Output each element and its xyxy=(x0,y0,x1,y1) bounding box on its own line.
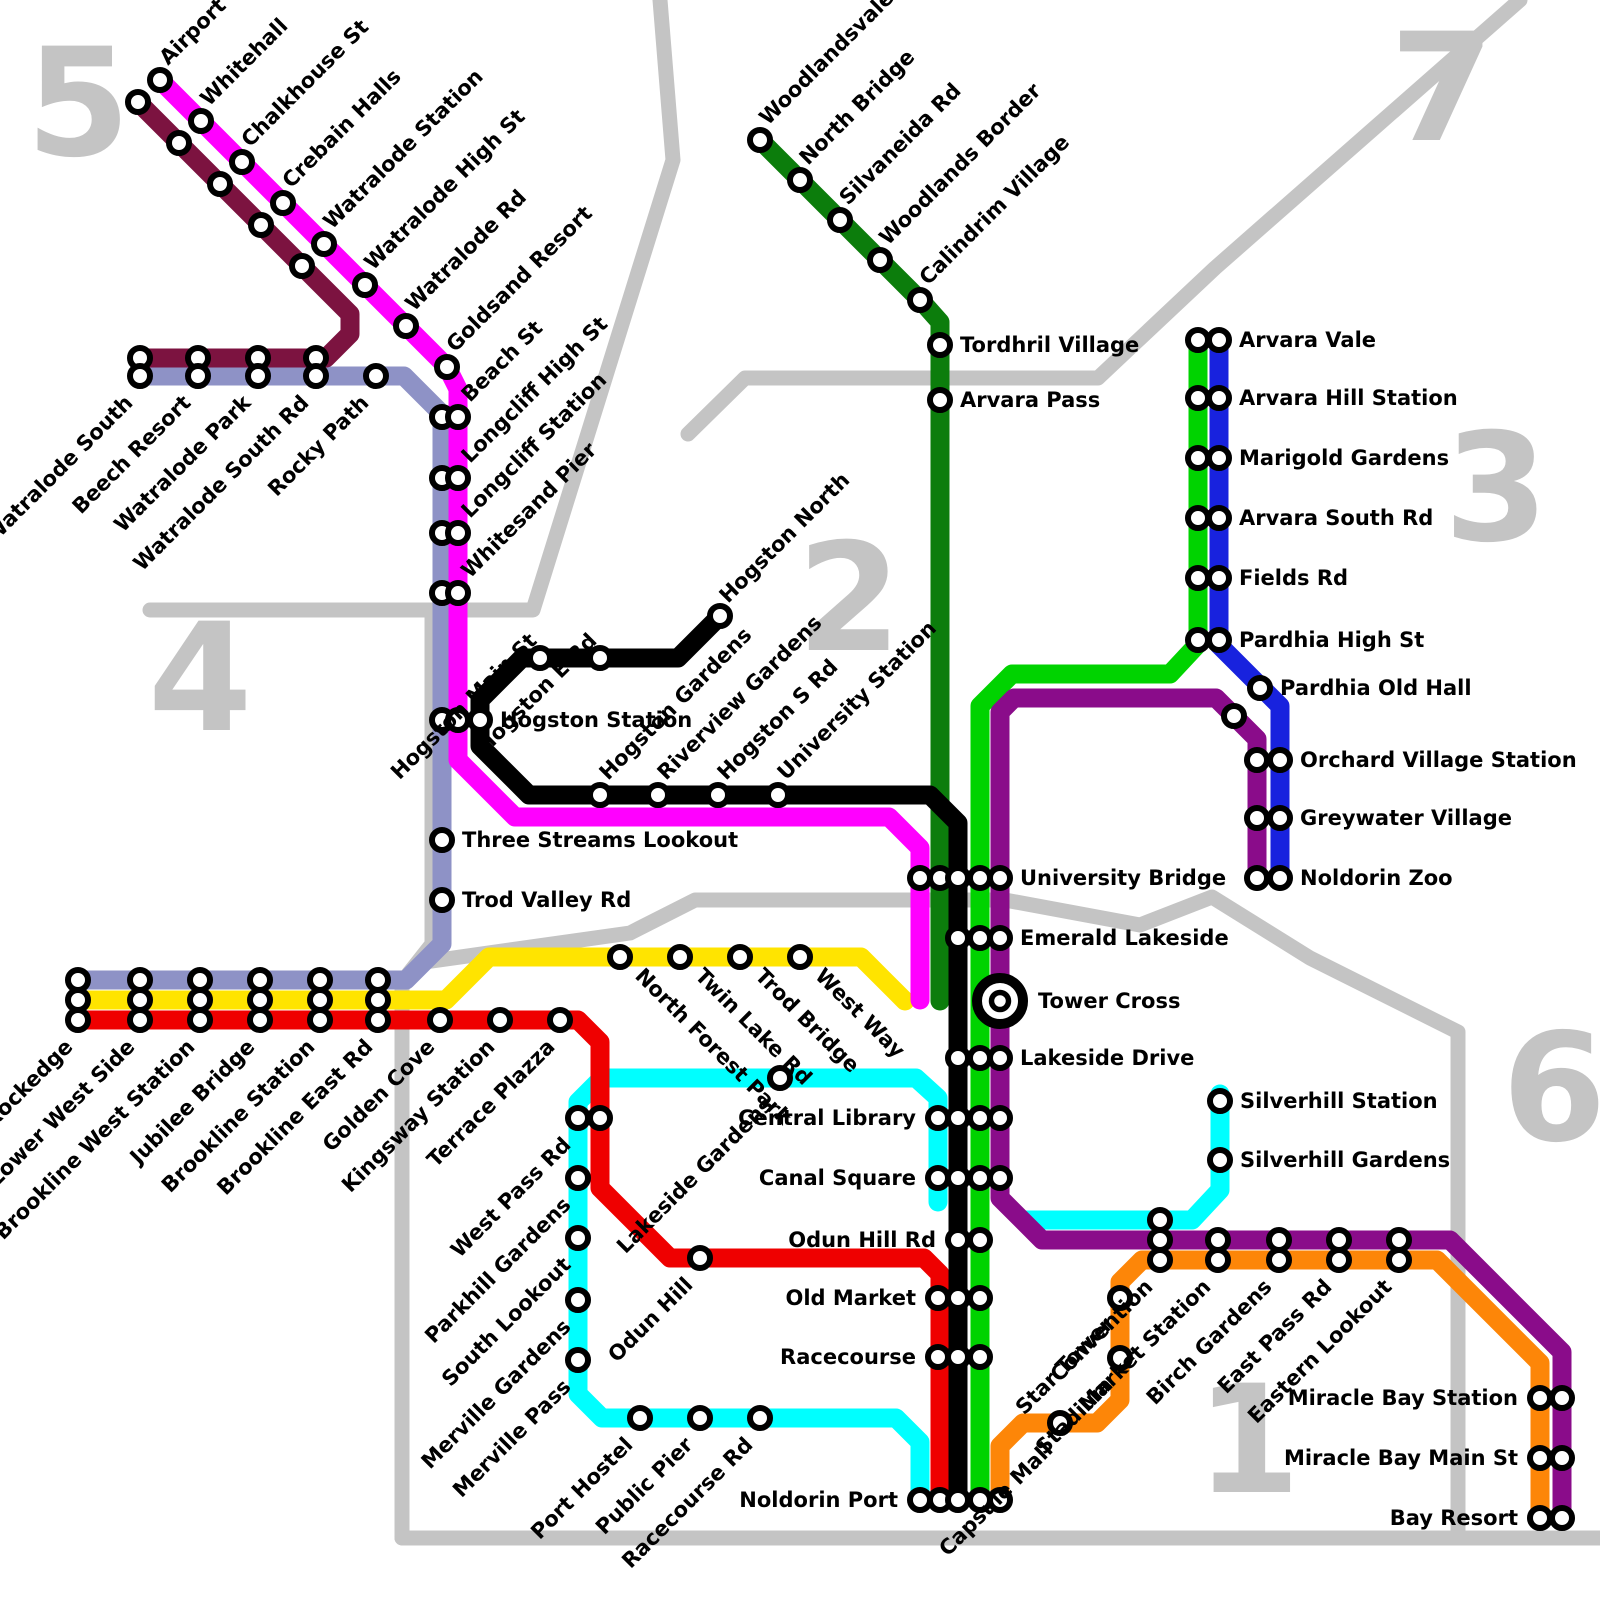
station-label: Tower Cross xyxy=(1038,989,1180,1013)
station-emerald-lakeside xyxy=(948,928,1010,948)
station-dot xyxy=(248,366,268,386)
station-dot xyxy=(169,133,189,153)
station-label: Silverhill Gardens xyxy=(1240,1148,1450,1172)
station-beach-st xyxy=(432,407,468,427)
station-dot xyxy=(1210,1150,1230,1170)
station-dot xyxy=(750,130,770,150)
station-label: Noldorin Zoo xyxy=(1300,866,1453,890)
station-pardhia-high-st xyxy=(1188,630,1229,650)
station-dot xyxy=(1270,868,1290,888)
station-dot xyxy=(948,1048,968,1068)
station-dot xyxy=(191,111,211,131)
station-dot xyxy=(708,785,728,805)
station-longcliff-high-st xyxy=(432,468,468,488)
station-label: Port Hostel xyxy=(526,1433,637,1544)
station-dot xyxy=(1250,678,1270,698)
station-public-pier xyxy=(690,1408,710,1428)
station-dot xyxy=(251,215,271,235)
zone-number-5: 5 xyxy=(26,17,130,191)
station-label: Emerald Lakeside xyxy=(1020,926,1229,950)
station-dot xyxy=(790,170,810,190)
station-dot xyxy=(306,366,326,386)
station-tordhril-village xyxy=(930,335,950,355)
station-lower-west-side xyxy=(130,970,150,1030)
station-golden-cove xyxy=(430,1010,450,1030)
station-dot xyxy=(1247,808,1267,828)
station-dot xyxy=(292,256,312,276)
station-longcliff-station xyxy=(432,523,468,543)
station-label: Lakeside Drive xyxy=(1020,1046,1194,1070)
station-three-streams-lookout xyxy=(432,830,452,850)
station-jubilee-bridge xyxy=(250,970,270,1030)
station-dot xyxy=(1188,508,1208,528)
station-dot xyxy=(1188,448,1208,468)
station-convention xyxy=(1150,1210,1170,1270)
metro-map: 5723461 AirportWhitehallChalkhouse StCre… xyxy=(0,0,1600,1600)
station-dot xyxy=(568,1108,588,1128)
station-port-hostel xyxy=(630,1408,650,1428)
station-tower-cross xyxy=(977,978,1023,1024)
station-dot xyxy=(948,928,968,948)
station-label: Canal Square xyxy=(759,1166,916,1190)
station-old-market xyxy=(928,1288,990,1308)
station-dot xyxy=(1269,1250,1289,1270)
station-fields-rd xyxy=(1188,568,1229,588)
station-miracle-bay-main-st xyxy=(1530,1448,1572,1468)
station-south-lookout xyxy=(568,1228,588,1248)
station-dot xyxy=(990,928,1010,948)
station-trod-bridge xyxy=(730,947,750,967)
station-label: Pardhia High St xyxy=(1239,628,1424,652)
station-label: Trod Valley Rd xyxy=(462,888,631,912)
station-dot xyxy=(930,335,950,355)
station-dot xyxy=(630,1408,650,1428)
station-dot xyxy=(970,1288,990,1308)
station-dot xyxy=(610,947,630,967)
station-label: Old Market xyxy=(785,1286,916,1310)
station-dot xyxy=(568,1350,588,1370)
station-label: Arvara South Rd xyxy=(1239,506,1433,530)
station-orchard-village-station xyxy=(1247,750,1290,770)
station-brookline-west-station xyxy=(190,970,210,1030)
station-label: Racecourse xyxy=(780,1345,916,1369)
station-west-pass-rd xyxy=(568,1108,610,1128)
station-dot xyxy=(990,1168,1010,1188)
station-woodlands-border xyxy=(870,250,890,270)
station-calindrim-village xyxy=(910,290,930,310)
station-merville-pass xyxy=(568,1350,588,1370)
station-dot xyxy=(1530,1508,1550,1528)
station-dot xyxy=(1188,568,1208,588)
station-dot xyxy=(568,1290,588,1310)
station-label: Miracle Bay Station xyxy=(1288,1386,1518,1410)
station-north-bridge xyxy=(790,170,810,190)
station-dot xyxy=(550,1010,570,1030)
station-dot xyxy=(568,1168,588,1188)
station-dot xyxy=(1389,1250,1409,1270)
station-dot xyxy=(1209,448,1229,468)
station-dot xyxy=(210,174,230,194)
station-label: Pardhia Old Hall xyxy=(1280,676,1472,700)
station-dot xyxy=(1188,330,1208,350)
station-eastern-lookout xyxy=(1389,1230,1409,1270)
station-dot xyxy=(150,70,170,90)
station-label: Silverhill Station xyxy=(1240,1089,1438,1113)
station-label: Orchard Village Station xyxy=(1300,748,1577,772)
station-dot xyxy=(970,1347,990,1367)
station-north-forest-park xyxy=(610,947,630,967)
station-terrace-plazza xyxy=(550,1010,570,1030)
station-lakeside-drive xyxy=(948,1048,1010,1068)
station-birch-gardens xyxy=(1269,1230,1289,1270)
station-label: Arvara Pass xyxy=(960,388,1100,412)
station-dot xyxy=(368,1010,388,1030)
station-label: University Bridge xyxy=(1020,866,1226,890)
line-cyan-east xyxy=(1024,1094,1220,1220)
station-dot xyxy=(432,830,452,850)
station-riverview-gardens xyxy=(648,785,668,805)
station-twin-lake-rd xyxy=(670,947,690,967)
station-dot xyxy=(1247,750,1267,770)
station-dot xyxy=(590,785,610,805)
station-whitehall xyxy=(169,111,211,153)
station-central-library xyxy=(928,1108,1010,1128)
station-label: Central Library xyxy=(738,1106,916,1130)
station-dot xyxy=(948,1490,968,1510)
station-dot xyxy=(970,1230,990,1250)
station-label: Marigold Gardens xyxy=(1239,446,1449,470)
station-label: Odun Hill Rd xyxy=(788,1228,936,1252)
station-merville-gardens xyxy=(568,1290,588,1310)
station-racecourse xyxy=(928,1347,990,1367)
station-arvara-hill-station xyxy=(1188,388,1229,408)
station-dot xyxy=(432,890,452,910)
station-dot xyxy=(314,234,334,254)
station-dot xyxy=(188,366,208,386)
station-dot xyxy=(1530,1388,1550,1408)
station-arvara-south-rd xyxy=(1188,508,1229,528)
station-dot xyxy=(128,92,148,112)
station-brookline-east-rd xyxy=(368,970,388,1030)
zone-number-4: 4 xyxy=(148,592,252,766)
station-dot xyxy=(1188,630,1208,650)
station-label: Airport xyxy=(155,0,231,70)
station-dot xyxy=(1209,630,1229,650)
station-label: Miracle Bay Main St xyxy=(1284,1446,1518,1470)
station-label: Watralode Station xyxy=(319,64,488,233)
station-label: Trod Bridge xyxy=(750,964,864,1078)
station-label: Woodlands Border xyxy=(875,78,1046,249)
station-dot xyxy=(448,583,468,603)
station-beech-resort xyxy=(188,348,208,386)
station-canal-square xyxy=(928,1168,1010,1188)
station-label: Fields Rd xyxy=(1239,566,1348,590)
station-brookline-station xyxy=(310,970,330,1030)
station-racecourse-rd xyxy=(750,1408,770,1428)
station-watralode-park xyxy=(248,348,268,386)
station-hogston-north xyxy=(710,606,730,626)
station-dot xyxy=(710,606,730,626)
station-dot xyxy=(1530,1448,1550,1468)
zone-number-7: 7 xyxy=(1390,2,1494,176)
station-dot xyxy=(430,1010,450,1030)
station-dot xyxy=(396,316,416,336)
station-dot xyxy=(768,785,788,805)
station-dot xyxy=(1552,1448,1572,1468)
station-university-bridge xyxy=(910,868,1010,888)
station-dot xyxy=(130,1010,150,1030)
station-crebain-halls xyxy=(251,193,293,235)
station-dot xyxy=(448,407,468,427)
station-dot xyxy=(568,1228,588,1248)
station-arvara-vale xyxy=(1188,330,1229,350)
station-west-way xyxy=(790,947,810,967)
station-label: Watralode High St xyxy=(360,104,530,274)
station-dot xyxy=(948,1108,968,1128)
station-dot xyxy=(948,1288,968,1308)
station-dot xyxy=(590,1108,610,1128)
station-label: Tordhril Village xyxy=(960,333,1139,357)
station-dot xyxy=(250,1010,270,1030)
station-label: Greywater Village xyxy=(1300,806,1512,830)
station-dot xyxy=(130,366,150,386)
station-greywater-village xyxy=(1247,808,1290,828)
station-dot xyxy=(1552,1508,1572,1528)
station-dot xyxy=(1270,808,1290,828)
station-dot xyxy=(648,785,668,805)
station-east-pass-rd xyxy=(1329,1230,1349,1270)
station-dot xyxy=(790,947,810,967)
station-dot xyxy=(366,366,386,386)
station-dot xyxy=(750,1408,770,1428)
station-dot xyxy=(355,275,375,295)
station-dot xyxy=(437,357,457,377)
station-hogston-gardens xyxy=(590,785,610,805)
station-dot xyxy=(448,523,468,543)
station-dot xyxy=(1208,1250,1228,1270)
station-dot xyxy=(670,947,690,967)
station-label: Odun Hill xyxy=(603,1273,697,1367)
station-watralode-high-st xyxy=(355,275,375,295)
station-dot xyxy=(1210,1091,1230,1111)
station-dot xyxy=(690,1408,710,1428)
station-watralode-south xyxy=(130,348,150,386)
station-dot xyxy=(1224,706,1244,726)
station-rockedge xyxy=(68,970,88,1030)
station-watralode-station xyxy=(292,234,334,276)
station-market-station xyxy=(1208,1230,1228,1270)
station-noldorin-zoo xyxy=(1247,868,1290,888)
station-label: Calindrim Village xyxy=(915,130,1075,290)
station-dot xyxy=(948,868,968,888)
station-dot xyxy=(990,1048,1010,1068)
station-label: Noldorin Port xyxy=(739,1488,898,1512)
station-dot xyxy=(1209,330,1229,350)
station-dot xyxy=(1247,868,1267,888)
station-dot xyxy=(930,390,950,410)
station-hogston-s-rd xyxy=(708,785,728,805)
station-dot xyxy=(1209,508,1229,528)
station-dot xyxy=(870,250,890,270)
zone-number-3: 3 xyxy=(1444,402,1548,576)
station-dot xyxy=(310,1010,330,1030)
station-bay-resort xyxy=(1530,1508,1572,1528)
station-odun-hill xyxy=(690,1248,710,1268)
station-dot xyxy=(948,1347,968,1367)
station-dot xyxy=(1209,568,1229,588)
station-silverhill-station xyxy=(1210,1091,1230,1111)
station-dot xyxy=(990,1108,1010,1128)
station-dot xyxy=(232,152,252,172)
station-odun-hill-rd xyxy=(948,1230,990,1250)
station-label: Arvara Vale xyxy=(1239,328,1376,352)
station-dot xyxy=(830,210,850,230)
station-university-station xyxy=(768,785,788,805)
station-dot xyxy=(448,468,468,488)
station-dot xyxy=(1150,1250,1170,1270)
station-whitesand-pier xyxy=(432,583,468,603)
station-silvaneida-rd xyxy=(830,210,850,230)
station-label: Three Streams Lookout xyxy=(462,828,738,852)
station-trod-valley-rd xyxy=(432,890,452,910)
station-dot xyxy=(273,193,293,213)
station-watralode-south-rd xyxy=(306,348,326,386)
station-dot xyxy=(490,1010,510,1030)
station-dot xyxy=(948,1230,968,1250)
station-goldsand-resort xyxy=(437,357,457,377)
station-chalkhouse-st xyxy=(210,152,252,194)
station-dot xyxy=(1270,750,1290,770)
station-kingsway-station xyxy=(490,1010,510,1030)
station-dot xyxy=(1552,1388,1572,1408)
station-label: Bay Resort xyxy=(1390,1506,1518,1530)
zone-number-6: 6 xyxy=(1502,1002,1600,1176)
station-watralode-rd xyxy=(396,316,416,336)
interchange-dot xyxy=(992,993,1009,1010)
station-rocky-path xyxy=(366,366,386,386)
station-label: Arvara Hill Station xyxy=(1239,386,1458,410)
station-dot xyxy=(910,290,930,310)
station-arvara-pass xyxy=(930,390,950,410)
metro-map-canvas: 5723461 AirportWhitehallChalkhouse StCre… xyxy=(0,0,1600,1600)
station-dot xyxy=(1329,1250,1349,1270)
station-parkhill-gardens xyxy=(568,1168,588,1188)
station-dot xyxy=(1188,388,1208,408)
station-dot xyxy=(68,1010,88,1030)
station-silverhill-gardens xyxy=(1210,1150,1230,1170)
station-dot xyxy=(948,1168,968,1188)
station-dot xyxy=(1209,388,1229,408)
station-marigold-gardens xyxy=(1188,448,1229,468)
station-dot xyxy=(690,1248,710,1268)
station-miracle-bay-station xyxy=(1530,1388,1572,1408)
station-woodlandsvale-c xyxy=(750,130,770,150)
station-dot xyxy=(190,1010,210,1030)
station-dot xyxy=(990,868,1010,888)
station-dot xyxy=(730,947,750,967)
station-airport xyxy=(128,70,170,112)
